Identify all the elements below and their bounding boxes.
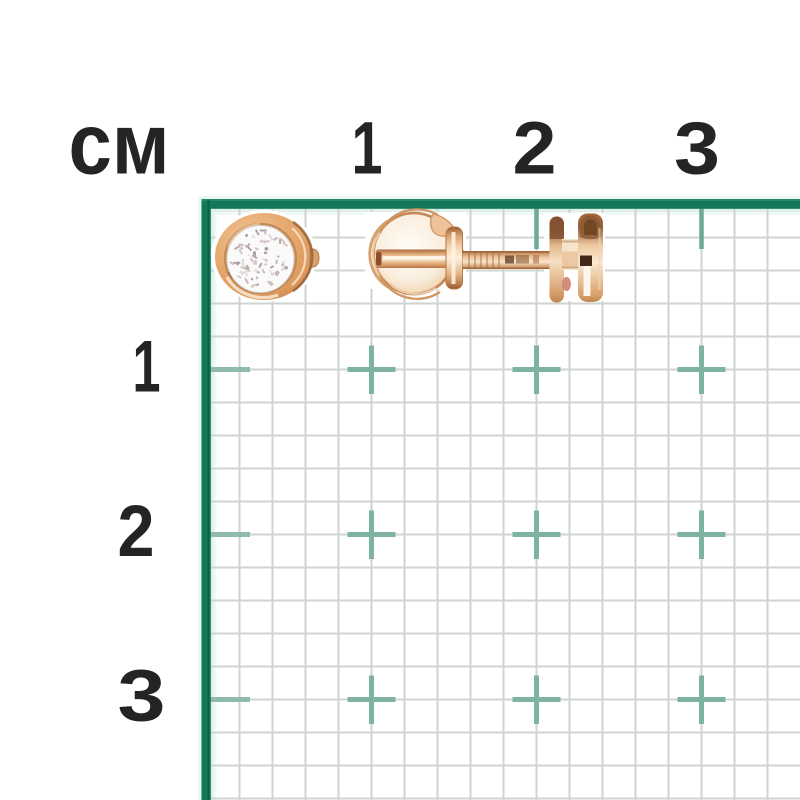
svg-text:3: 3	[674, 107, 720, 190]
svg-text:1: 1	[352, 107, 383, 190]
svg-text:2: 2	[118, 491, 155, 572]
svg-text:3: 3	[118, 656, 166, 737]
svg-text:см: см	[69, 97, 170, 193]
svg-text:2: 2	[513, 107, 557, 190]
svg-text:1: 1	[133, 327, 161, 408]
